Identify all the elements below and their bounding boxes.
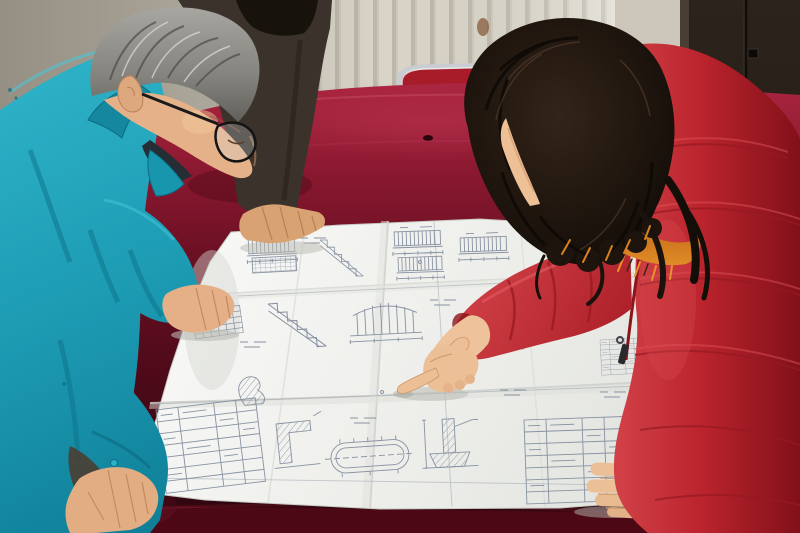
door-latch — [748, 49, 758, 58]
rust-stain — [477, 18, 489, 36]
jacket-stain — [62, 382, 66, 386]
photo-scene — [0, 0, 800, 533]
drawing-detail — [252, 256, 297, 273]
curled-finger — [465, 374, 475, 384]
jacket-stain — [14, 96, 17, 99]
curled-finger — [455, 380, 465, 390]
cuff-button — [111, 460, 118, 467]
curled-finger — [443, 383, 453, 393]
jacket-stain — [8, 88, 12, 92]
man-glasses — [216, 123, 256, 162]
hand-shadow — [240, 241, 324, 255]
